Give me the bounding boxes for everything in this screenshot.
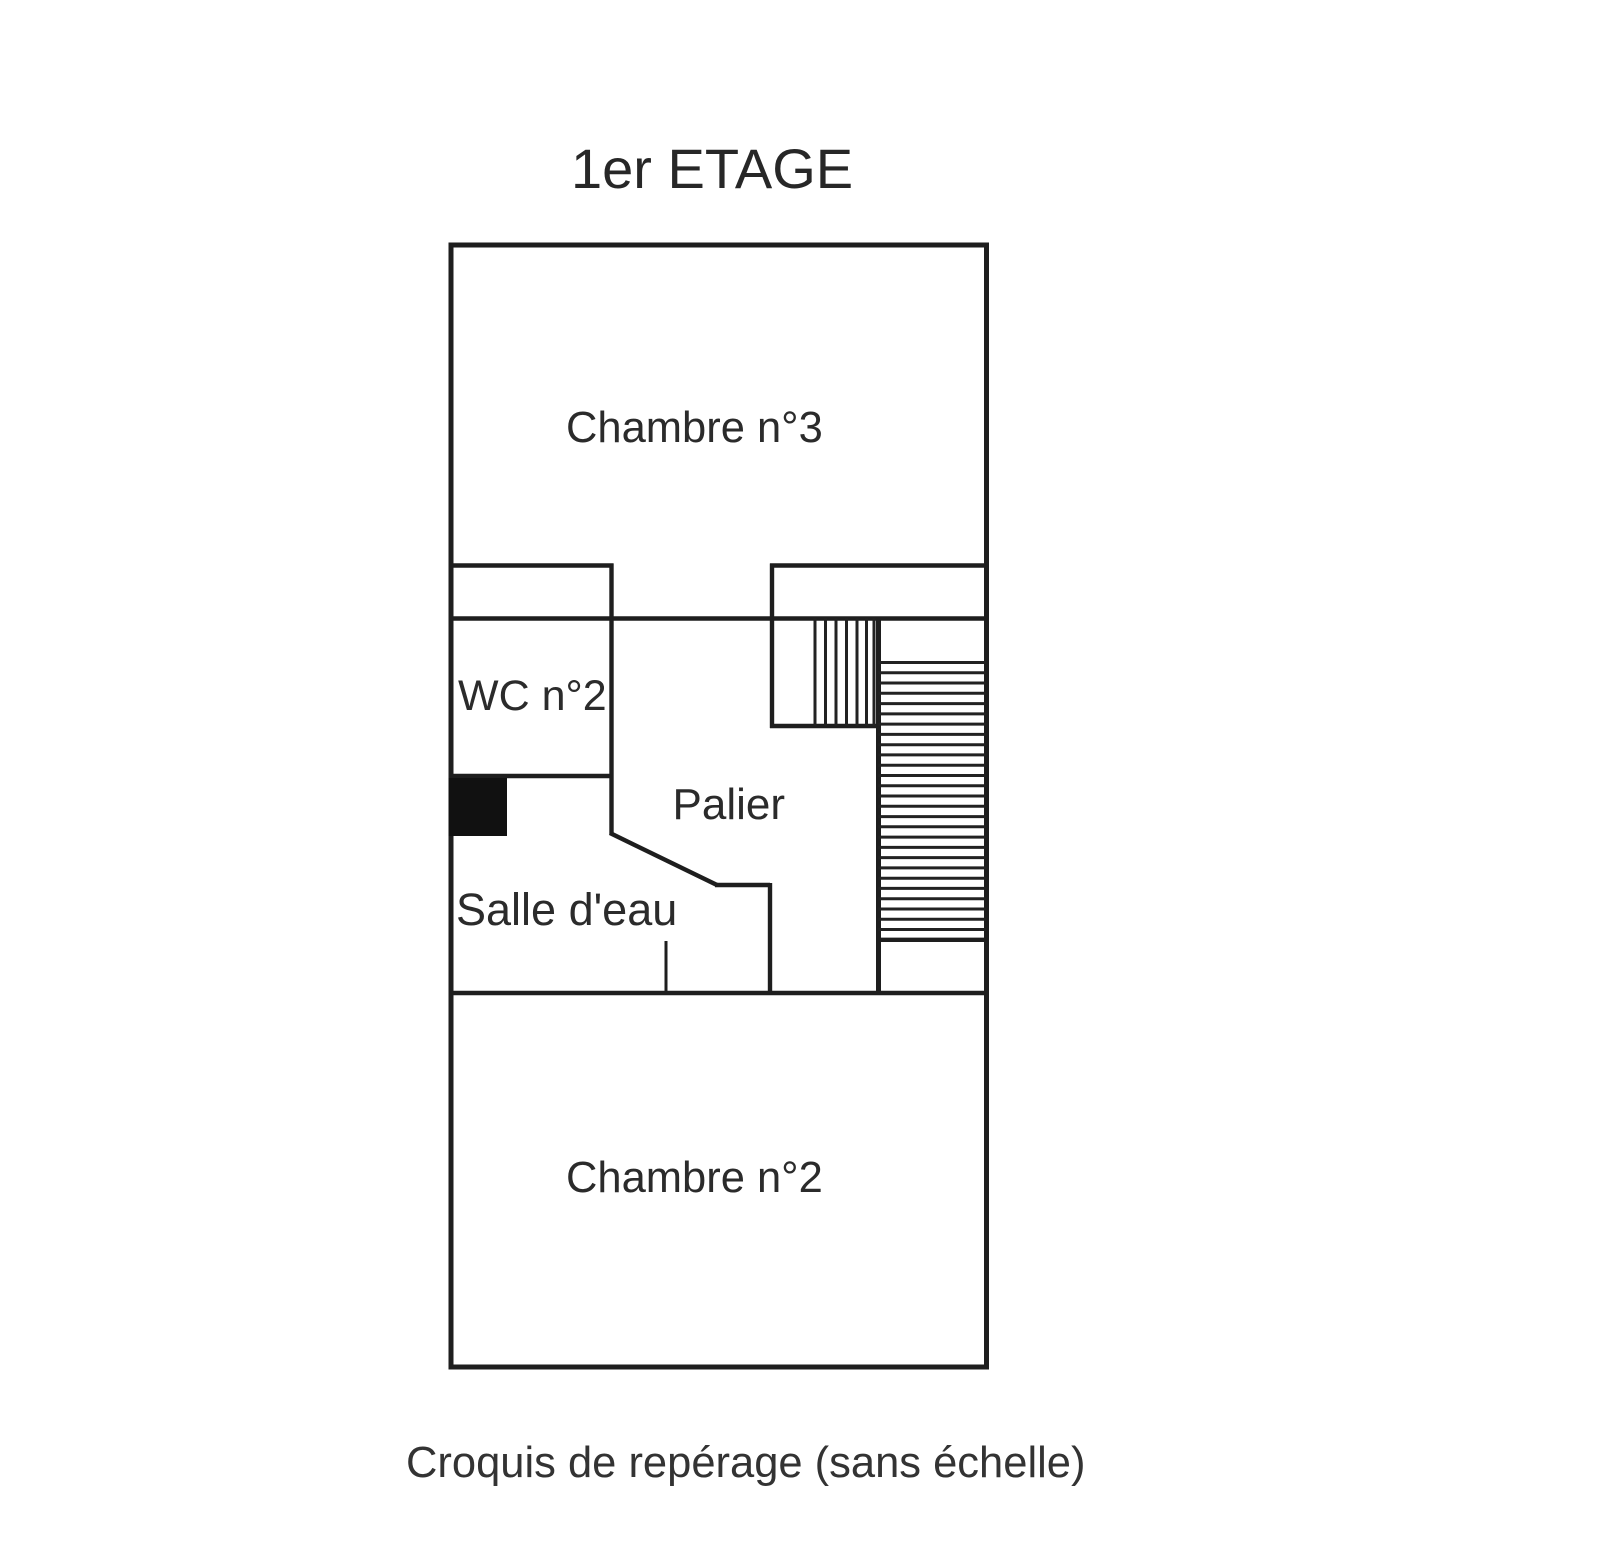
svg-text:Croquis de repérage (sans éche: Croquis de repérage (sans échelle) xyxy=(406,1439,1085,1487)
svg-text:Chambre n°2: Chambre n°2 xyxy=(566,1154,823,1202)
svg-text:WC n°2: WC n°2 xyxy=(458,672,607,720)
svg-text:1er ETAGE: 1er ETAGE xyxy=(571,137,853,200)
svg-text:Salle d'eau: Salle d'eau xyxy=(456,884,677,935)
svg-text:Palier: Palier xyxy=(673,780,786,829)
svg-text:Chambre n°3: Chambre n°3 xyxy=(566,404,823,452)
